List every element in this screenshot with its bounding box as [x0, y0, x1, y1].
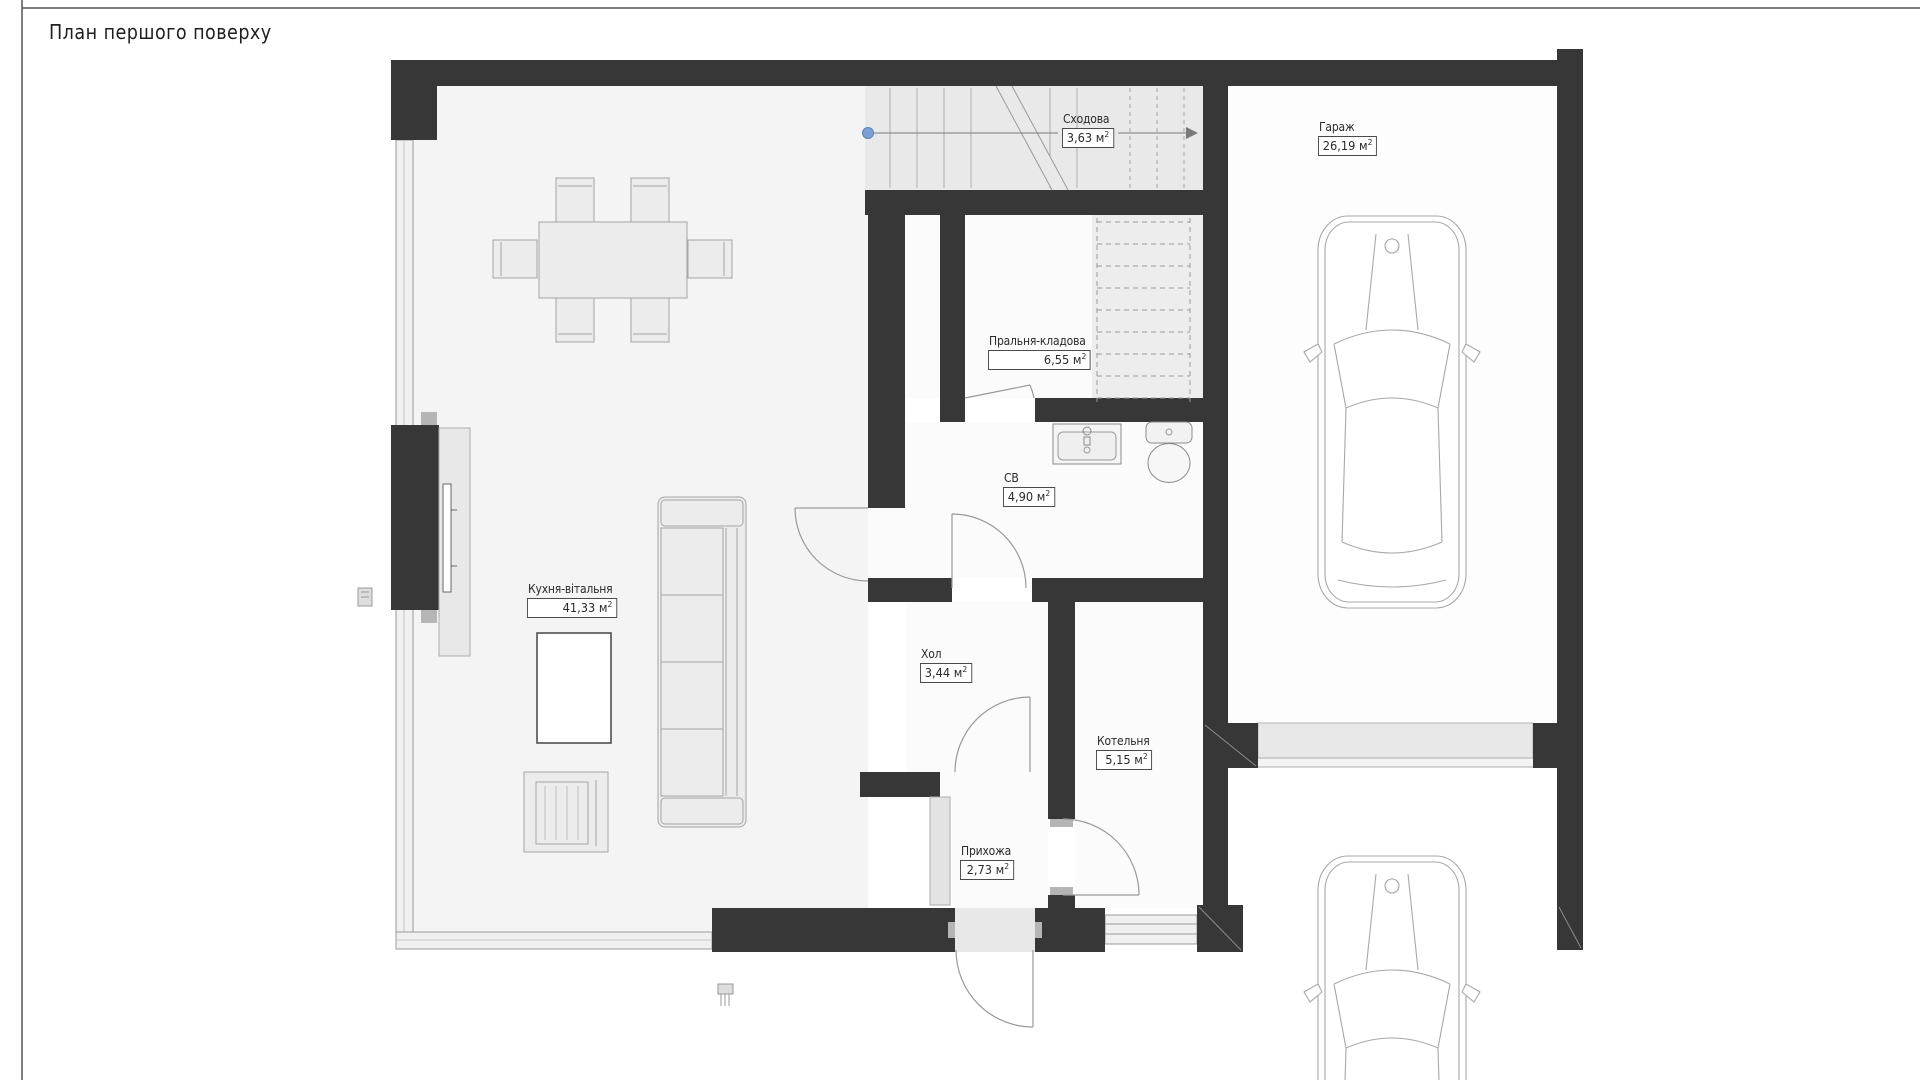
area-value: 3,63 м2: [1062, 128, 1114, 148]
room-label-skhodova: Сходова 3,63 м2: [1062, 112, 1117, 148]
area-value: 4,90 м2: [1003, 487, 1055, 507]
tv-icon: [443, 484, 451, 592]
area-value: 3,44 м2: [920, 663, 972, 683]
tv-unit: [439, 428, 470, 656]
dining-chair: [556, 298, 594, 342]
dining-chair: [493, 240, 537, 278]
area-value: 2,73 м2: [960, 860, 1014, 880]
exterior-drain-icon: [718, 984, 733, 1006]
dining-chair: [556, 178, 594, 222]
entrance-door: [956, 950, 1033, 1027]
entry-closet: [930, 797, 950, 905]
tv-wall-pier: [391, 425, 439, 610]
floor-plan-sheet: План першого поверху Сходова 3,63 м2 Гар…: [0, 0, 1920, 1080]
sofa: [658, 497, 746, 827]
floor-plan-drawing: [0, 0, 1920, 1080]
drawing-title: План першого поверху: [49, 20, 272, 44]
room-label-entry: Прихожа 2,73 м2: [960, 844, 1017, 880]
room-label-boiler: Котельня 5,15 м2: [1096, 734, 1155, 770]
dining-chair: [631, 298, 669, 342]
exterior-lamp-icon: [358, 588, 372, 606]
dining-table: [539, 222, 687, 298]
room-label-laundry: Пральня-кладова 6,55 м2: [988, 334, 1096, 370]
area-value: 41,33 м2: [527, 598, 617, 618]
dining-chair: [631, 178, 669, 222]
stairs-start-marker: [863, 128, 874, 139]
boiler-room-window: [1097, 915, 1197, 944]
coffee-table: [537, 633, 611, 743]
bottom-left-window-band: [396, 932, 712, 949]
room-label-kitchen: Кухня-вітальня 41,33 м2: [527, 582, 622, 618]
sink: [1053, 424, 1121, 464]
car-in-garage: [1304, 216, 1480, 608]
room-label-hall: Хол 3,44 м2: [920, 647, 975, 683]
dining-chair: [688, 240, 732, 278]
armchair: [524, 772, 608, 852]
garage-door: [1243, 723, 1550, 768]
room-label-wc: СВ 4,90 м2: [1003, 471, 1058, 507]
area-value: 5,15 м2: [1096, 750, 1152, 770]
area-value: 26,19 м2: [1318, 136, 1377, 156]
room-label-garage: Гараж 26,19 м2: [1318, 120, 1380, 156]
toilet: [1146, 422, 1192, 483]
car-on-driveway: [1304, 856, 1480, 1080]
area-value: 6,55 м2: [988, 350, 1091, 370]
